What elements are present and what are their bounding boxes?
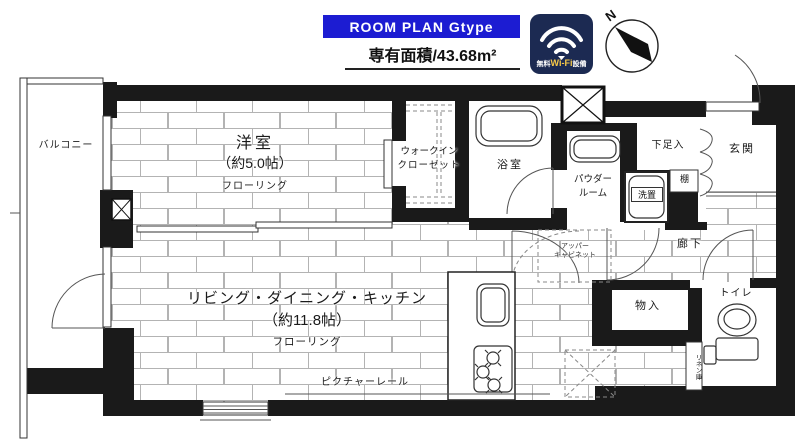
balcony-label: バルコニー [27, 140, 105, 153]
linen-label: リネン庫 [688, 345, 701, 389]
entrance-label: 玄関 [711, 143, 773, 157]
wic-label-line1: ウォークイン [394, 146, 464, 158]
ldk-label: リビング・ダイニング・キッチン [137, 290, 477, 309]
powder-room-label-line2: ルーム [564, 188, 622, 200]
toilet-tank [716, 338, 758, 360]
upper-cabinet-label-line1: アッパー [546, 243, 604, 252]
western-room-size: （約5.0帖） [155, 155, 355, 173]
floor-plan-svg [0, 0, 800, 441]
shelf-label: 棚 [671, 174, 698, 185]
ldk-size: （約11.8帖） [137, 312, 477, 331]
picture-rail-label: ピクチャーレール [280, 377, 450, 390]
powder-room-label-line1: パウダー [564, 174, 622, 186]
bathroom-label: 浴室 [479, 159, 541, 173]
ldk-floor: フローリング [137, 336, 477, 349]
shoe-cabinet-label: 下足入 [637, 140, 699, 153]
toilet-label: トイレ [702, 288, 770, 301]
floor-plan-page: ROOM PLAN Gtype 専有面積/43.68m² 無料Wi-Fi設備 N [0, 0, 800, 441]
western-room-floor: フローリング [155, 181, 355, 194]
corridor-label: 廊下 [659, 238, 721, 252]
washer-label: 洗置 [631, 187, 663, 202]
storage-label: 物入 [612, 300, 684, 314]
wic-label-line2: クローゼット [394, 160, 464, 172]
western-room-label: 洋室 [155, 134, 355, 154]
upper-cabinet-label-line2: キャビネット [546, 252, 604, 261]
